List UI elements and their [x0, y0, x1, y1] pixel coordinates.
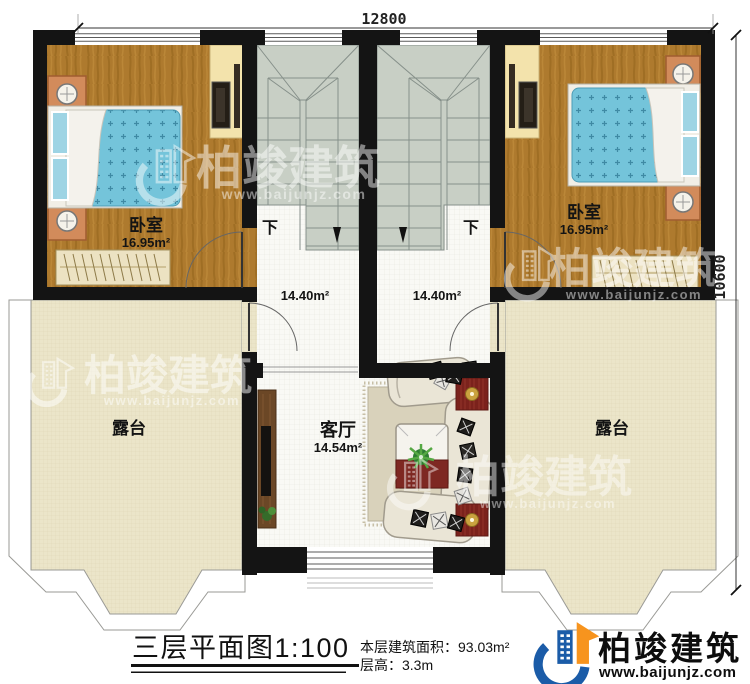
- watermark-website: www.baijunjz.com: [221, 186, 367, 202]
- pillow: [682, 136, 698, 176]
- watermark-website: www.baijunjz.com: [479, 496, 616, 511]
- speaker-icon: [234, 64, 240, 128]
- bed: [568, 84, 700, 186]
- speaker-icon: [509, 64, 515, 128]
- watermark-1: 柏竣建筑 www.baijunjz.com: [139, 142, 380, 202]
- bedroom-right-area: 16.95m²: [560, 222, 609, 237]
- floor-height-note: 层高：3.3m: [360, 657, 433, 673]
- coffee-table: [396, 424, 448, 488]
- bedroom-right-label: 卧室: [567, 202, 601, 222]
- floor-area-note: 本层建筑面积：93.03m²: [360, 639, 510, 655]
- pillow: [52, 112, 68, 154]
- tv-icon: [261, 426, 271, 496]
- stair-left-area: 14.40m²: [281, 288, 330, 303]
- company-website: www.baijunjz.com: [598, 664, 736, 681]
- dimension-top-value: 12800: [361, 10, 406, 28]
- plan-title: 三层平面图1:100: [132, 633, 350, 663]
- stair-right-area: 14.40m²: [413, 288, 462, 303]
- bedroom-left-label: 卧室: [129, 215, 163, 235]
- watermark-website: www.baijunjz.com: [565, 287, 702, 302]
- company-name: 柏竣建筑: [598, 630, 742, 667]
- stair-right-down-label: 下: [463, 220, 479, 237]
- terrace-left: [9, 300, 245, 630]
- stair-left-down-label: 下: [262, 220, 278, 237]
- watermark-2: 柏竣建筑 www.baijunjz.com: [507, 245, 717, 302]
- watermark-website: www.baijunjz.com: [103, 393, 240, 408]
- pillow: [52, 158, 68, 200]
- terrace-right-label: 露台: [595, 418, 629, 438]
- bedroom-left-area: 16.95m²: [122, 235, 171, 250]
- doorway-bedroom-right: [490, 228, 505, 288]
- title-underline: [131, 664, 359, 667]
- floor-plan-drawing: 柏竣建筑 www.baijunjz.com 柏竣建筑 www.baijunjz.…: [0, 0, 750, 684]
- wardrobe: [56, 250, 170, 285]
- watermark-company: 柏竣建筑: [549, 245, 717, 292]
- living-room-area: 14.54m²: [314, 440, 363, 455]
- floor-plan-page: 柏竣建筑 www.baijunjz.com 柏竣建筑 www.baijunjz.…: [0, 0, 750, 684]
- doorway-bedroom-left: [242, 228, 257, 288]
- pillow: [682, 92, 698, 132]
- terrace-left-label: 露台: [112, 418, 146, 438]
- dimension-right-value: 10600: [711, 254, 729, 299]
- watermark-company: 柏竣建筑: [84, 352, 252, 399]
- living-room-label: 客厅: [320, 419, 356, 440]
- title-underline-thin: [131, 672, 346, 674]
- watermark-company: 柏竣建筑: [456, 453, 632, 502]
